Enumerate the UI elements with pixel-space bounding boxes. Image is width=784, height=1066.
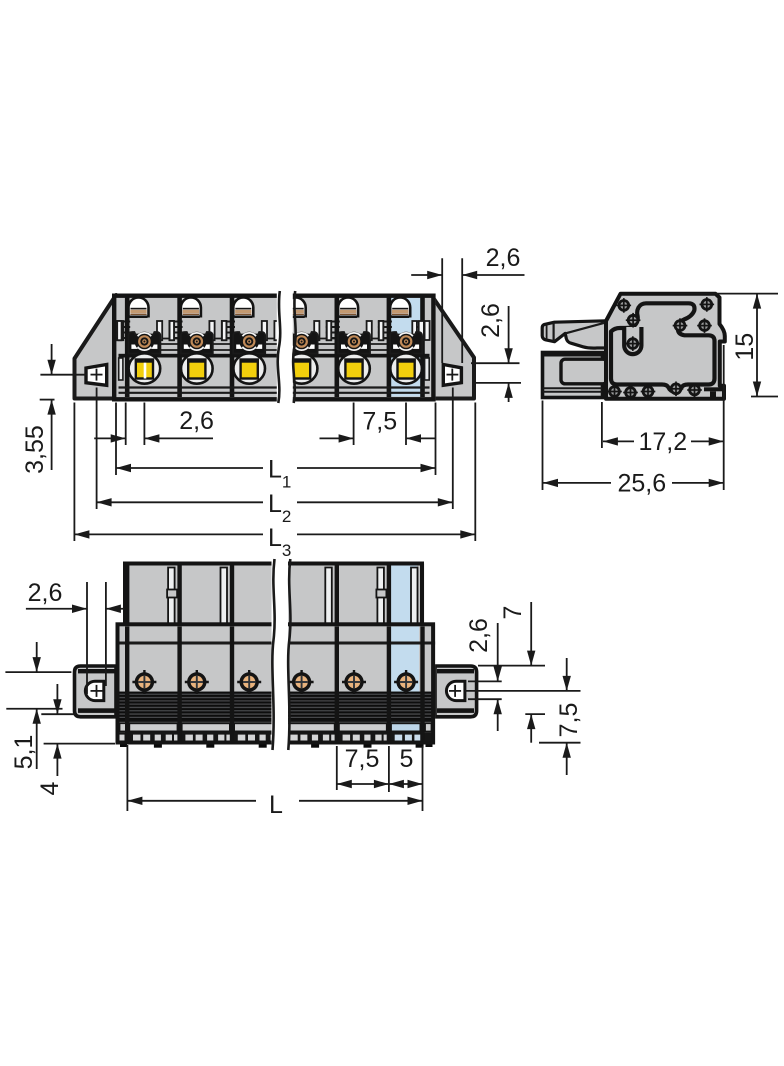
svg-text:2,6: 2,6	[179, 407, 214, 435]
svg-text:L: L	[269, 791, 283, 819]
svg-text:2,6: 2,6	[477, 303, 505, 338]
svg-text:4: 4	[36, 781, 64, 795]
svg-text:7: 7	[499, 606, 527, 620]
svg-text:25,6: 25,6	[617, 470, 666, 498]
svg-text:17,2: 17,2	[638, 428, 687, 456]
svg-text:2,6: 2,6	[465, 618, 493, 653]
svg-text:3,55: 3,55	[21, 425, 49, 474]
svg-text:5: 5	[400, 745, 414, 773]
svg-text:15: 15	[731, 333, 759, 361]
svg-text:7,5: 7,5	[555, 703, 583, 738]
svg-text:7,5: 7,5	[345, 745, 380, 773]
svg-text:2,6: 2,6	[28, 579, 63, 607]
svg-text:7,5: 7,5	[362, 408, 397, 436]
svg-text:2,6: 2,6	[486, 244, 521, 272]
svg-text:5,1: 5,1	[10, 735, 38, 770]
